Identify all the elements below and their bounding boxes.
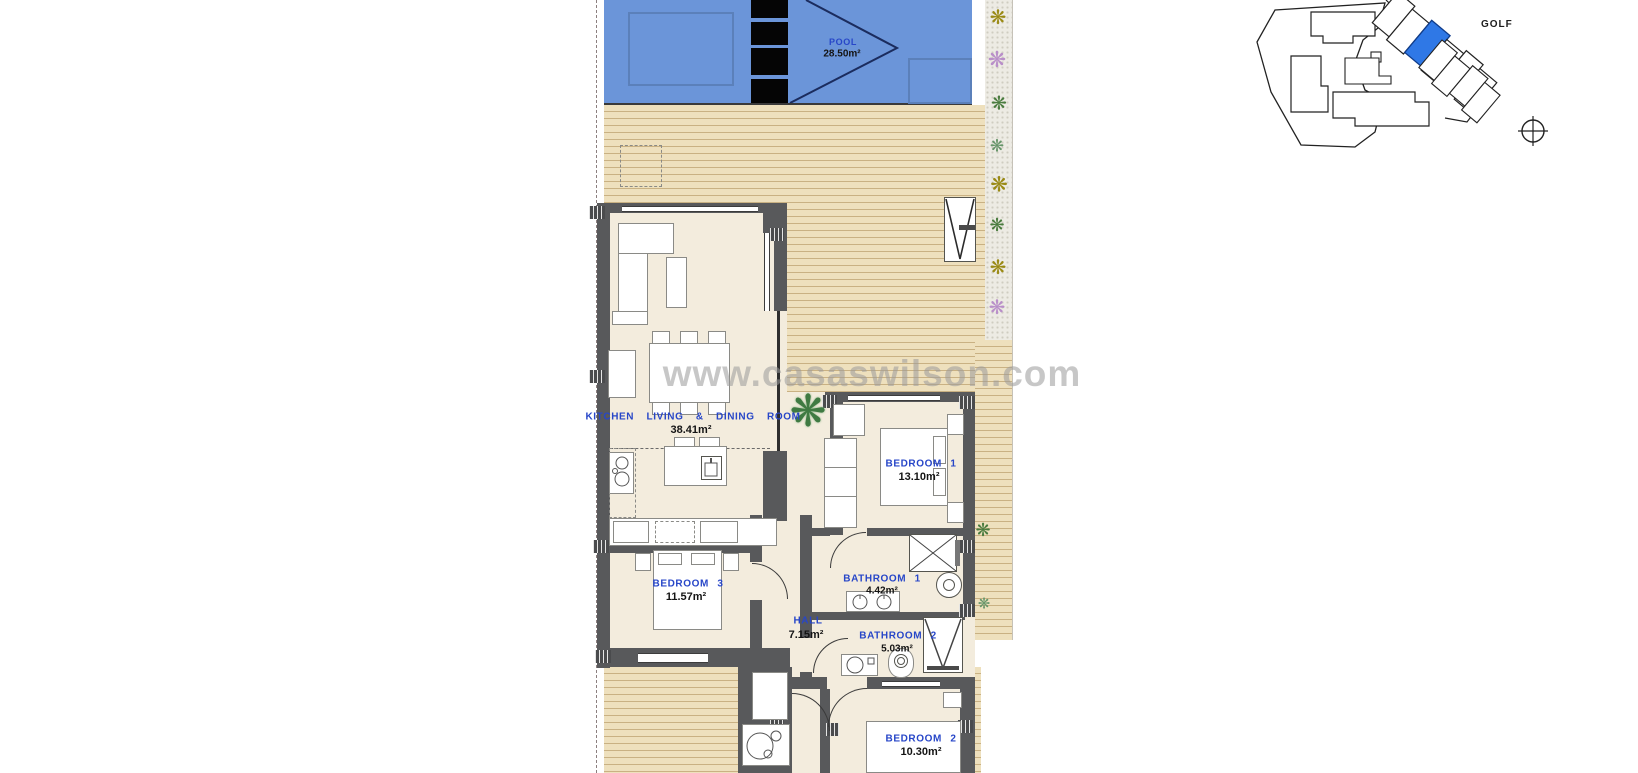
room-label-bedroom3: BEDROOM 3: [653, 579, 724, 590]
appliance-dashed: [655, 521, 695, 543]
olive-plant-icon: ❋: [990, 8, 1007, 28]
wall-tick: [770, 228, 784, 241]
pool-area: 28.50m²: [823, 49, 860, 60]
wall: [812, 528, 830, 536]
room-label-bedroom2: BEDROOM 2: [886, 734, 957, 745]
room-area-hall: 7.15m²: [789, 629, 824, 641]
wardrobe: [824, 438, 857, 528]
pool-edge-detail: [628, 12, 734, 86]
green-plant-icon: ❋: [989, 216, 1004, 234]
sofa: [618, 223, 674, 254]
kitchen-sink: [701, 456, 722, 480]
room-label-bedroom1: BEDROOM 1: [886, 459, 957, 470]
site-plan: GOLF: [1205, 0, 1550, 155]
terrace-deck-bottom-left: [604, 667, 744, 773]
wall-tick: [589, 206, 605, 219]
pergola-icon: [944, 197, 976, 262]
wall-tick: [595, 650, 611, 663]
wall: [597, 203, 610, 668]
wall-tick: [959, 604, 975, 617]
hob-icon: [609, 452, 634, 494]
deck-marking: [620, 145, 662, 187]
compass-icon: [1518, 116, 1548, 146]
room-label-kitchen: KITCHEN LIVING & DINING ROOM: [585, 412, 800, 423]
pool-steps-icon: [751, 0, 788, 18]
pool-label: POOL: [829, 37, 857, 47]
room-area-bedroom3: 11.57m²: [666, 591, 706, 603]
golf-label: GOLF: [1481, 19, 1513, 30]
wall: [790, 677, 827, 689]
pillow: [691, 553, 715, 565]
pool-steps-icon: [751, 79, 788, 103]
storage-unit: [752, 672, 788, 720]
tv-unit: [608, 350, 636, 398]
pool-steps-icon: [751, 22, 788, 45]
green-plant-icon: ❋: [975, 521, 990, 539]
window: [622, 206, 758, 212]
nightstand: [943, 692, 962, 708]
garden-edge-line: [1012, 0, 1013, 640]
appliance: [700, 521, 738, 543]
room-label-bathroom1: BATHROOM 1: [843, 574, 920, 585]
wall-tick: [959, 396, 975, 409]
wall: [774, 233, 787, 311]
window: [764, 233, 770, 311]
watermark: www.casaswilson.com: [663, 353, 1082, 395]
room-label-hall: HALL: [793, 616, 822, 627]
wall-tick: [589, 370, 605, 383]
toilet-icon: [936, 572, 962, 598]
purple-plant-icon: ❋: [988, 49, 1006, 71]
wall-tick: [959, 540, 975, 553]
window: [882, 681, 940, 687]
green-plant-icon: ❋: [990, 138, 1004, 155]
purple-plant-icon: ❋: [989, 298, 1006, 318]
wardrobe: [833, 404, 865, 436]
pillow: [658, 553, 682, 565]
window: [848, 395, 940, 401]
room-area-bathroom1: 4.42m²: [866, 586, 898, 597]
coffee-table: [666, 257, 687, 308]
bar-stool: [699, 437, 720, 447]
pool-steps-icon: [751, 48, 788, 75]
olive-plant-icon: ❋: [990, 175, 1008, 196]
bar-stool: [674, 437, 695, 447]
nightstand: [947, 502, 964, 523]
nightstand: [947, 414, 964, 435]
room-area-bathroom2: 5.03m²: [881, 644, 913, 655]
pool: POOL 28.50m²: [604, 0, 972, 105]
washing-machine-icon: [742, 724, 790, 766]
shower: [909, 534, 957, 572]
nightstand: [723, 553, 739, 571]
nightstand: [635, 553, 651, 571]
pool-edge-detail: [908, 58, 972, 104]
sofa: [612, 311, 648, 325]
towel-rail: [955, 540, 960, 566]
room-area-bedroom1: 13.10m²: [899, 471, 940, 483]
sofa: [618, 253, 648, 313]
wall-tick: [593, 540, 609, 553]
wall: [963, 392, 975, 617]
room-area-bedroom2: 10.30m²: [901, 746, 942, 758]
green-plant-icon: ❋: [978, 597, 991, 612]
olive-plant-icon: ❋: [990, 258, 1007, 278]
room-area-kitchen: 38.41m²: [671, 424, 712, 436]
wall: [763, 451, 787, 521]
shower: [923, 617, 963, 673]
appliance: [613, 521, 649, 543]
floor-plan-page: POOL 28.50m² ❋ ❋ ❋ ❋ ❋ ❋ ❋ ❋ ❋ ❋: [0, 0, 1638, 773]
room-label-bathroom2: BATHROOM 2: [859, 631, 936, 642]
window: [638, 653, 708, 663]
green-plant-icon: ❋: [991, 95, 1007, 114]
